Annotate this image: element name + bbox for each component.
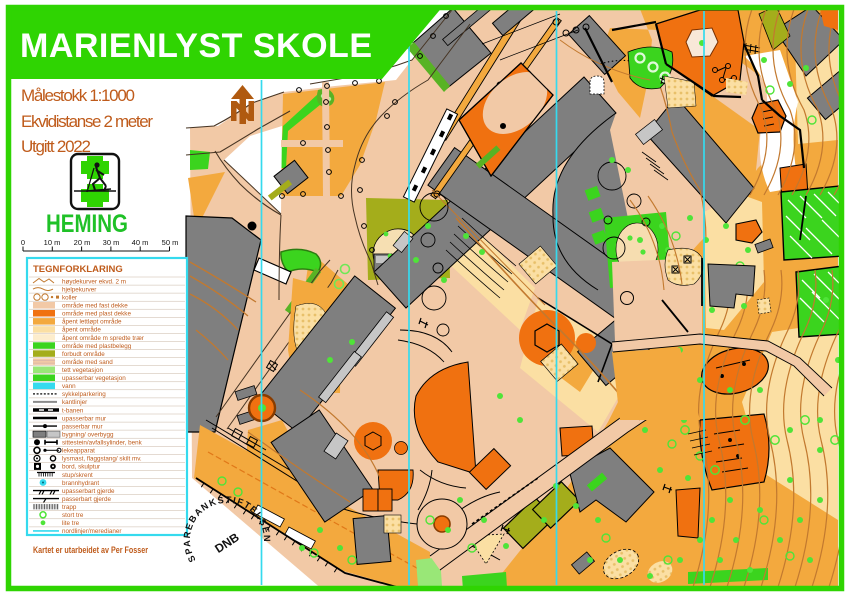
- svg-text:Målestokk 1:1000: Målestokk 1:1000: [21, 86, 135, 105]
- svg-text:Kartet er utarbeidet av Per Fo: Kartet er utarbeidet av Per Fosser: [33, 545, 148, 555]
- svg-text:hjelpekurver: hjelpekurver: [62, 286, 96, 293]
- svg-text:område med plastbelegg: område med plastbelegg: [62, 342, 132, 350]
- svg-text:høydekurver ekvd. 2 m: høydekurver ekvd. 2 m: [62, 278, 126, 285]
- svg-text:lite tre: lite tre: [62, 520, 80, 527]
- svg-text:område med fast dekke: område med fast dekke: [62, 302, 128, 310]
- svg-text:område med sand: område med sand: [62, 358, 113, 366]
- svg-text:brannhydrant: brannhydrant: [62, 480, 99, 487]
- svg-text:t-banen: t-banen: [62, 407, 84, 414]
- svg-text:30 m: 30 m: [103, 238, 120, 247]
- svg-text:nordlinjer/meredianer: nordlinjer/meredianer: [62, 528, 122, 535]
- svg-text:stort tre: stort tre: [62, 512, 84, 519]
- svg-text:lekeapparat: lekeapparat: [62, 448, 95, 455]
- svg-text:0: 0: [21, 238, 25, 247]
- svg-text:20 m: 20 m: [74, 238, 91, 247]
- svg-text:lysmast, flaggstang/ skilt mv.: lysmast, flaggstang/ skilt mv.: [62, 456, 142, 463]
- svg-text:50 m: 50 m: [162, 238, 179, 247]
- svg-text:åpent område m spredte trær: åpent område m spredte trær: [62, 334, 144, 342]
- svg-text:vann: vann: [62, 383, 76, 390]
- svg-text:passerbart gjerde: passerbart gjerde: [62, 496, 112, 503]
- svg-text:koller: koller: [62, 294, 77, 301]
- svg-text:sittestein/avfallsylinder, ben: sittestein/avfallsylinder, benk: [62, 440, 143, 447]
- svg-text:HEMING: HEMING: [46, 210, 128, 238]
- svg-text:sykkelparkering: sykkelparkering: [62, 391, 106, 398]
- svg-text:tett vegetasjon: tett vegetasjon: [62, 367, 103, 374]
- svg-text:upasserbar mur: upasserbar mur: [62, 415, 106, 422]
- svg-text:åpent lettløpt område: åpent lettløpt område: [62, 318, 122, 326]
- svg-text:kantlinjer: kantlinjer: [62, 399, 87, 406]
- svg-text:passerbar mur: passerbar mur: [62, 423, 103, 430]
- svg-text:bygning/ overbygg: bygning/ overbygg: [62, 432, 114, 439]
- svg-text:forbudt område: forbudt område: [62, 350, 105, 358]
- svg-text:upasserbart gjerde: upasserbart gjerde: [62, 488, 115, 495]
- svg-text:område med plast dekke: område med plast dekke: [62, 310, 131, 318]
- svg-text:Ekvidistanse 2 meter: Ekvidistanse 2 meter: [21, 112, 153, 131]
- svg-text:TEGNFORKLARING: TEGNFORKLARING: [33, 264, 123, 275]
- svg-text:DNB: DNB: [212, 530, 242, 556]
- svg-text:10 m: 10 m: [44, 238, 61, 247]
- svg-text:40 m: 40 m: [132, 238, 149, 247]
- svg-text:åpent område: åpent område: [62, 326, 101, 334]
- svg-text:MARIENLYST SKOLE: MARIENLYST SKOLE: [20, 27, 372, 65]
- svg-text:trapp: trapp: [62, 504, 77, 511]
- svg-text:stup/skrent: stup/skrent: [62, 472, 93, 479]
- svg-text:upasserbar vegetasjon: upasserbar vegetasjon: [62, 375, 126, 382]
- svg-text:bord, skulptur: bord, skulptur: [62, 464, 100, 471]
